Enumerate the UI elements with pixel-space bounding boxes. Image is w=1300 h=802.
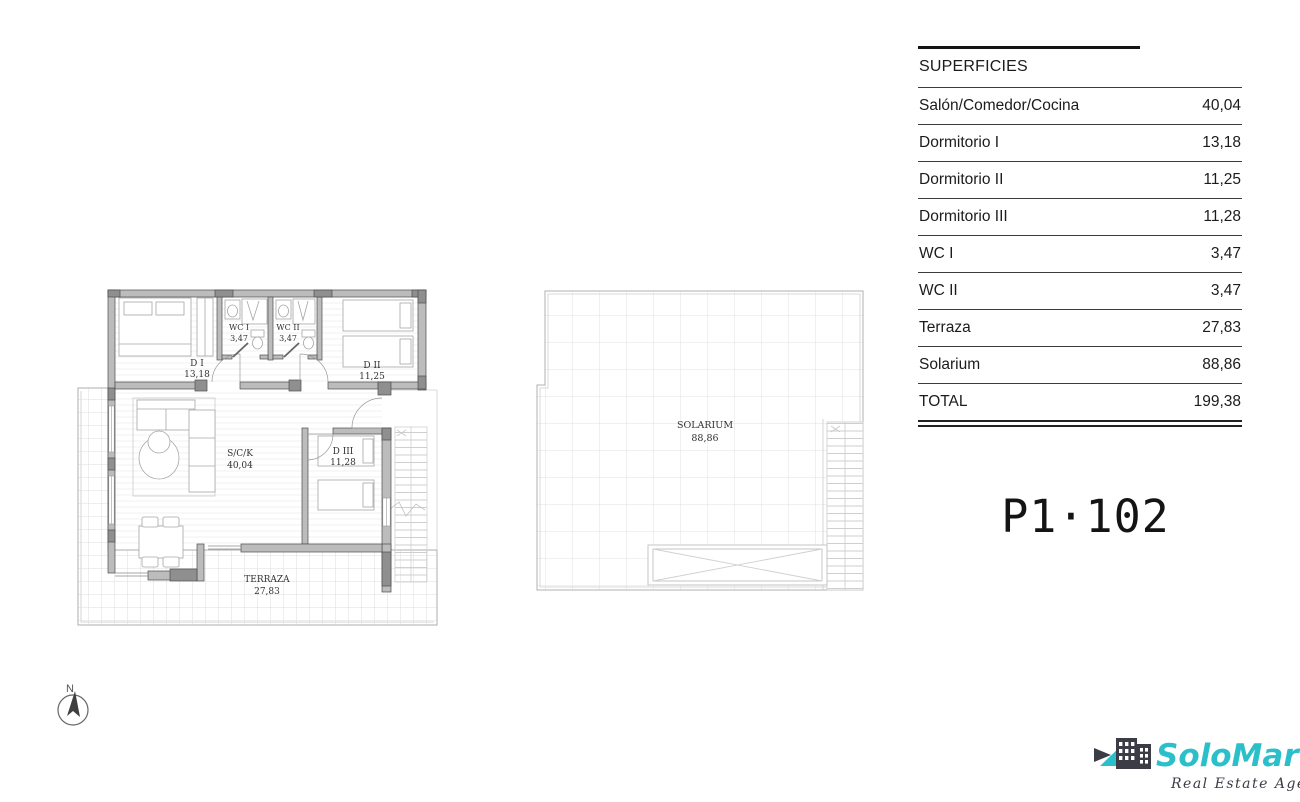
table-row: Dormitorio I 13,18 <box>918 124 1242 161</box>
table-row: Terraza 27,83 <box>918 309 1242 346</box>
logo-building-icon <box>1094 738 1151 769</box>
table-row: WC II 3,47 <box>918 272 1242 309</box>
logo-name: SoloMar <box>1156 738 1300 774</box>
room-label-d3: D III <box>333 447 354 457</box>
table-bottom-rule <box>918 420 1242 427</box>
table-row-total: TOTAL 199,38 <box>918 383 1242 420</box>
room-label-wc2: WC II <box>276 323 299 332</box>
room-label-d1: D I <box>190 359 204 369</box>
row-label: Dormitorio III <box>919 207 1008 227</box>
table-row: Dormitorio III 11,28 <box>918 198 1242 235</box>
room-label-d2: D II <box>363 361 381 371</box>
solarium-label: SOLARIUM <box>677 420 733 431</box>
north-compass: N <box>44 680 104 742</box>
surfaces-table: SUPERFICIES Salón/Comedor/Cocina 40,04 D… <box>918 46 1242 427</box>
solarium-stairs <box>823 419 863 590</box>
solarium-area: 88,86 <box>691 433 718 444</box>
floor-plan-page: D I 13,18 WC I 3,47 WC II 3,47 D II 11,2… <box>0 0 1300 802</box>
row-label: Salón/Comedor/Cocina <box>919 96 1079 116</box>
table-row: Salón/Comedor/Cocina 40,04 <box>918 87 1242 124</box>
unit-label: P1·102 <box>988 490 1183 543</box>
table-title: SUPERFICIES <box>918 49 1242 87</box>
room-area-d3: 11,28 <box>330 458 356 468</box>
row-value: 3,47 <box>1211 281 1241 301</box>
row-value: 88,86 <box>1202 355 1241 375</box>
room-label-sck: S/C/K <box>227 449 253 459</box>
table-row: WC I 3,47 <box>918 235 1242 272</box>
row-value: 40,04 <box>1202 96 1241 116</box>
room-area-terraza: 27,83 <box>254 587 280 597</box>
solarium-plan: SOLARIUM 88,86 <box>518 288 878 593</box>
row-value: 27,83 <box>1202 318 1241 338</box>
row-label: TOTAL <box>919 392 968 412</box>
row-value: 3,47 <box>1211 244 1241 264</box>
row-value: 11,25 <box>1203 170 1241 190</box>
room-area-sck: 40,04 <box>227 461 253 471</box>
room-area-d1: 13,18 <box>184 370 210 380</box>
apartment-floor-plan: D I 13,18 WC I 3,47 WC II 3,47 D II 11,2… <box>75 282 440 632</box>
skylight-box <box>648 545 827 585</box>
row-label: Dormitorio II <box>919 170 1003 190</box>
row-label: Solarium <box>919 355 980 375</box>
room-area-d2: 11,25 <box>359 372 385 382</box>
room-label-terraza: TERRAZA <box>244 575 290 585</box>
table-row: Solarium 88,86 <box>918 346 1242 383</box>
row-label: WC I <box>919 244 953 264</box>
agency-logo: SoloMar Real Estate Agency <box>1088 722 1300 798</box>
table-row: Dormitorio II 11,25 <box>918 161 1242 198</box>
row-value: 13,18 <box>1202 133 1241 153</box>
room-area-wc1: 3,47 <box>230 334 248 343</box>
row-label: Terraza <box>919 318 971 338</box>
row-label: WC II <box>919 281 958 301</box>
room-area-wc2: 3,47 <box>279 334 297 343</box>
row-value: 199,38 <box>1194 392 1241 412</box>
compass-n-label: N <box>66 683 74 695</box>
row-value: 11,28 <box>1203 207 1241 227</box>
logo-tagline: Real Estate Agency <box>1170 776 1300 792</box>
row-label: Dormitorio I <box>919 133 999 153</box>
room-label-wc1: WC I <box>229 323 249 332</box>
